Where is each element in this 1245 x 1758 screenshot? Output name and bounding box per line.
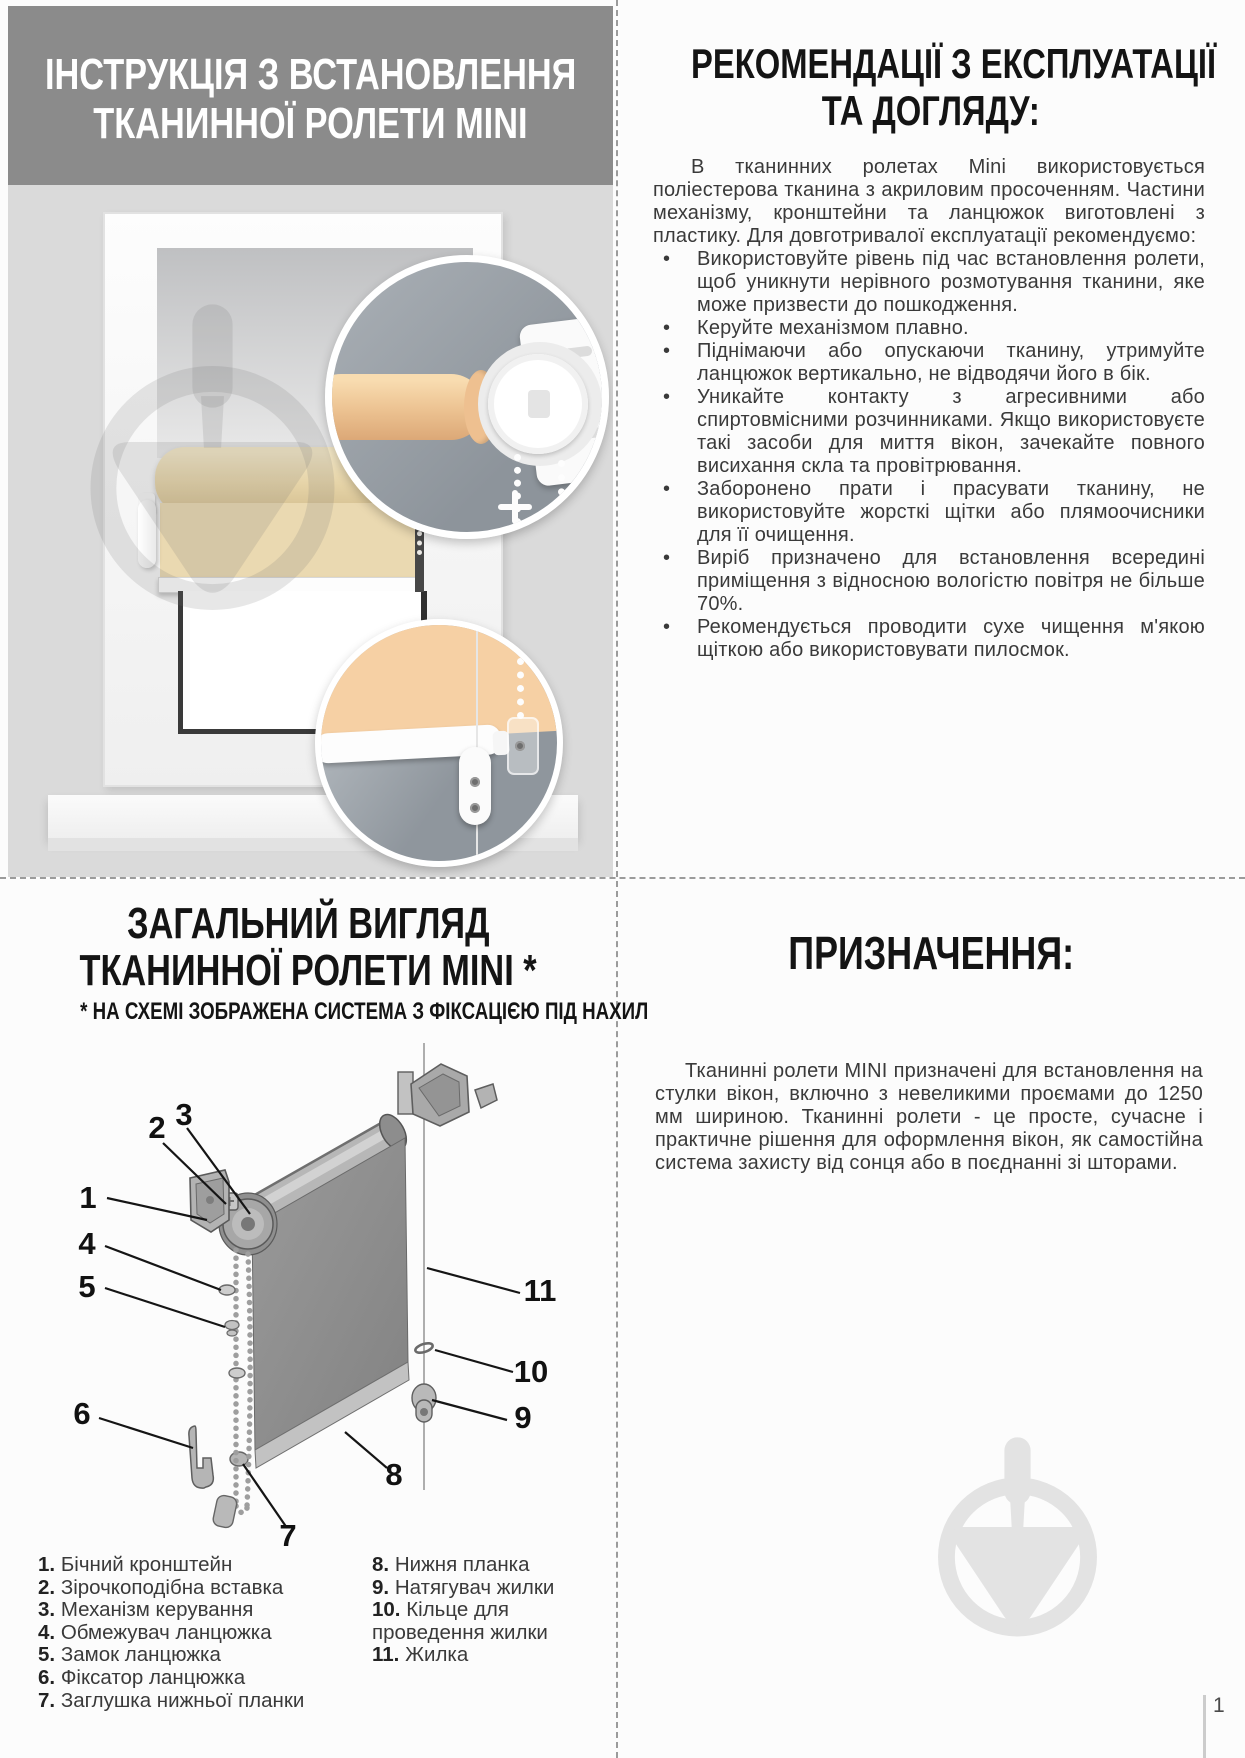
recommendations-title: РЕКОМЕНДАЦІЇ З ЕКСПЛУАТАЦІЇ ТА ДОГЛЯДУ: — [617, 40, 1245, 134]
installation-title-line2: ТКАНИННОЇ РОЛЕТИ MINI — [93, 99, 527, 148]
legend-item: 9. Натягувач жилки — [372, 1577, 600, 1600]
tilt-bracket — [398, 1064, 497, 1126]
page-number: 1 — [1213, 1694, 1225, 1718]
chain-limiter — [219, 1285, 235, 1295]
screw — [515, 741, 525, 751]
trowel-watermark-icon — [69, 304, 356, 649]
bead-chain — [558, 460, 565, 538]
chain-limiter — [229, 1368, 245, 1378]
recommendations-list: Використовуйте рівень під час встановлен… — [653, 248, 1205, 662]
list-item: Використовуйте рівень під час встановлен… — [697, 248, 1205, 317]
recommendations-title-line1: РЕКОМЕНДАЦІЇ З ЕКСПЛУАТАЦІЇ — [691, 40, 1216, 87]
parts-legend-column2: 8. Нижня планка 9. Натягувач жилки 10. К… — [372, 1554, 600, 1667]
legend-item: 7. Заглушка нижньої планки — [38, 1690, 353, 1713]
callout-label: 8 — [385, 1457, 402, 1493]
trowel-watermark-icon — [924, 1437, 1111, 1662]
installation-header: ІНСТРУКЦІЯ З ВСТАНОВЛЕННЯ ТКАНИННОЇ РОЛЕ… — [8, 6, 613, 185]
overview-title-line2: ТКАНИННОЇ РОЛЕТИ MINI * — [80, 947, 537, 994]
list-item: Керуйте механізмом плавно. — [697, 317, 1205, 340]
exploded-diagram: 1 2 3 4 5 6 7 8 9 10 11 — [15, 1028, 595, 1573]
legend-item: 2. Зірочкоподібна вставка — [38, 1577, 353, 1600]
callout-label: 9 — [514, 1400, 531, 1436]
installation-section: ІНСТРУКЦІЯ З ВСТАНОВЛЕННЯ ТКАНИННОЇ РОЛЕ… — [0, 0, 617, 878]
screw — [470, 777, 480, 787]
page-number-divider — [1203, 1695, 1206, 1758]
legend-item: 1. Бічний кронштейн — [38, 1554, 353, 1577]
purpose-body: Тканинні ролети MINI призначені для вста… — [655, 1060, 1203, 1175]
callout-label: 10 — [514, 1354, 548, 1390]
recommendations-intro: В тканинних ролетах Mini використовуєтьс… — [653, 156, 1205, 248]
callout-label: 5 — [78, 1269, 95, 1305]
overview-title-line1: ЗАГАЛЬНИЙ ВИГЛЯД — [127, 900, 489, 947]
window-photo — [8, 185, 613, 877]
recommendations-section: РЕКОМЕНДАЦІЇ З ЕКСПЛУАТАЦІЇ ТА ДОГЛЯДУ: … — [617, 0, 1245, 878]
callout-label: 2 — [148, 1110, 165, 1146]
overview-subtitle: * НА СХЕМІ ЗОБРАЖЕНА СИСТЕМА З ФІКСАЦІЄЮ… — [0, 998, 617, 1025]
bead-chain — [517, 631, 524, 719]
purpose-title: ПРИЗНАЧЕННЯ: — [788, 928, 1074, 978]
recommendations-title-line2: ТА ДОГЛЯДУ: — [822, 87, 1040, 134]
installation-title-line1: ІНСТРУКЦІЯ З ВСТАНОВЛЕННЯ — [45, 50, 576, 99]
legend-item: 3. Механізм керування — [38, 1599, 353, 1622]
bottom-bar-inset-photo — [315, 619, 563, 867]
purpose-section: ПРИЗНАЧЕННЯ: Тканинні ролети MINI призна… — [617, 878, 1245, 1758]
list-item: Уникайте контакту з агресивними або спир… — [697, 386, 1205, 478]
chain-connector — [498, 504, 532, 510]
purpose-title-wrap: ПРИЗНАЧЕННЯ: — [617, 928, 1245, 978]
legend-item: 8. Нижня планка — [372, 1554, 600, 1577]
legend-item: 6. Фіксатор ланцюжка — [38, 1667, 353, 1690]
list-item: Піднімаючи або опускаючи тканину, утриму… — [697, 340, 1205, 386]
guide-line — [476, 625, 478, 861]
fabric-roll — [325, 374, 484, 440]
callout-label: 11 — [524, 1273, 557, 1309]
screw — [470, 803, 480, 813]
callout-label: 3 — [175, 1097, 192, 1133]
mechanism-hub — [528, 390, 550, 418]
callout-label: 1 — [79, 1180, 96, 1216]
callout-label: 7 — [279, 1518, 296, 1554]
list-item: Виріб призначено для встановлення всеред… — [697, 547, 1205, 616]
overview-section: ЗАГАЛЬНИЙ ВИГЛЯД ТКАНИННОЇ РОЛЕТИ MINI *… — [0, 878, 617, 1758]
overview-title: ЗАГАЛЬНИЙ ВИГЛЯД ТКАНИННОЇ РОЛЕТИ MINI * — [0, 900, 617, 994]
diagram-drawing — [15, 1028, 595, 1573]
bottom-bar-plug — [230, 1452, 248, 1466]
list-item: Заборонено прати і прасувати тканину, не… — [697, 478, 1205, 547]
instruction-page: ІНСТРУКЦІЯ З ВСТАНОВЛЕННЯ ТКАНИННОЇ РОЛЕ… — [0, 0, 1245, 1758]
list-item: Рекомендується проводити сухе чищення м'… — [697, 616, 1205, 662]
chain-fixator — [189, 1426, 238, 1529]
callout-label: 4 — [78, 1226, 95, 1262]
parts-legend-column1: 1. Бічний кронштейн 2. Зірочкоподібна вс… — [38, 1554, 353, 1712]
line-tensioner — [412, 1384, 436, 1422]
callout-label: 6 — [73, 1396, 90, 1432]
legend-item: 11. Жилка — [372, 1644, 600, 1667]
legend-item: 5. Замок ланцюжка — [38, 1644, 353, 1667]
legend-item: 10. Кільце для проведення жилки — [372, 1599, 600, 1644]
chain-lock — [225, 1321, 239, 1337]
legend-item: 4. Обмежувач ланцюжка — [38, 1622, 353, 1645]
mechanism-inset-photo — [325, 255, 609, 539]
